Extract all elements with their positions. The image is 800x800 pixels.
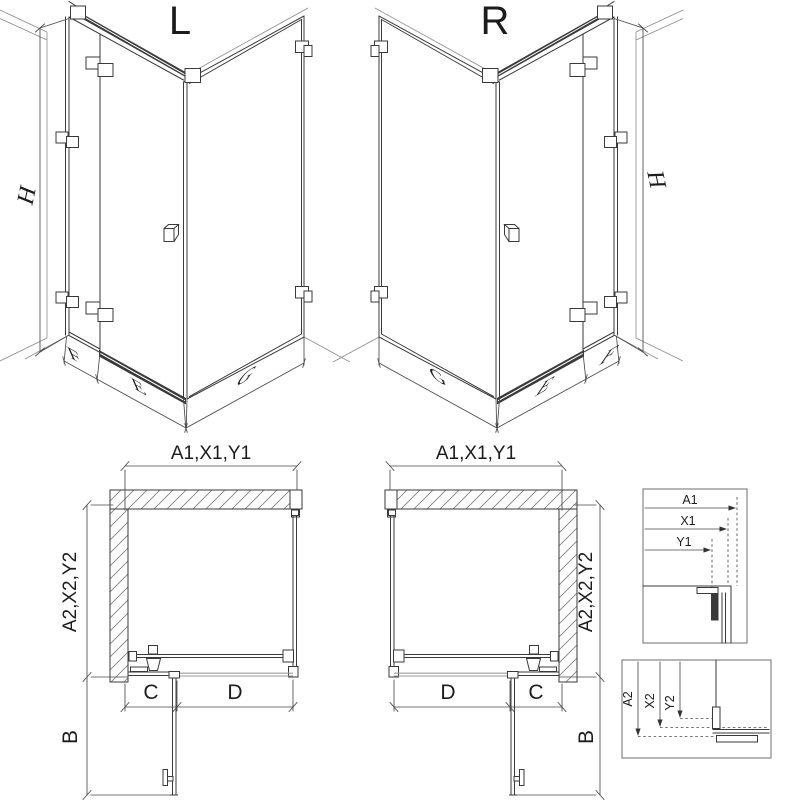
plan-support-bar-corner-block: [283, 650, 294, 662]
plan-door-handle-stem: [168, 777, 174, 782]
r-plan-top-wall-hatch: [385, 490, 577, 509]
side-glass-panel: [187, 16, 304, 399]
dim-label-side-right: G: [423, 361, 451, 392]
detail-label-y1: Y1: [676, 535, 691, 549]
corner-post: [184, 80, 188, 399]
plan-width-label-right: A1,X1,Y1: [436, 443, 516, 464]
plan-corner-fitting: [289, 667, 299, 678]
dim-label-b-left: B: [59, 730, 82, 744]
iso-dimension-lines: [40, 19, 304, 429]
technical-drawing-canvas: L R H H F F E E G G A1,X1,Y1 A1,X1,Y1 A2…: [0, 0, 800, 800]
support-bar-wall-clamp: [71, 6, 86, 19]
plan-door-handle-grip: [163, 770, 168, 786]
arrowhead-x2: [657, 720, 662, 728]
dim-label-d-right: D: [440, 681, 455, 704]
dim-label-c-left: C: [143, 681, 158, 704]
r-plan-side-wall-hatch: [559, 509, 577, 682]
plan-fixed-front-glass: [128, 672, 173, 676]
arrowhead-y1: [704, 547, 712, 552]
detail-bottom-threshold-section: [717, 736, 758, 743]
plan-fixed-glass-clamp: [131, 667, 148, 672]
l-plan-top-wall-hatch: [110, 490, 302, 509]
detail-label-x2: X2: [643, 693, 657, 708]
detail-top-wall-profile: [711, 594, 719, 621]
dim-label-height-left: H: [12, 183, 42, 208]
detail-label-y2: Y2: [663, 695, 677, 710]
plan-hinge-bracket: [147, 659, 161, 671]
detail-bottom-reference-dashes: [638, 719, 769, 737]
detail-label-a1: A1: [682, 493, 697, 507]
front-glass-wall-lines: [66, 17, 184, 353]
door-handle: [164, 225, 179, 242]
isometric-view-left-geometry: [0, 2, 350, 433]
plan-side-glass-panel: [293, 509, 297, 672]
plan-support-bar-end: [129, 652, 137, 662]
detail-top-reference-dashes: [712, 497, 737, 594]
arrowhead-a2: [635, 729, 640, 737]
l-plan-side-wall-hatch: [110, 509, 128, 682]
detail-top-bracket: [697, 588, 718, 594]
support-bar-corner-fitting: [185, 69, 201, 83]
plan-wall-profile-recess: [290, 490, 302, 509]
arrowhead-x1: [720, 526, 728, 531]
plan-tray-edge: [176, 673, 293, 676]
dim-label-d-left: D: [227, 681, 242, 704]
plan-hinge-bracket-top: [149, 646, 158, 655]
detail-box-width-references: [643, 489, 747, 643]
technical-drawing-page: L R H H F F E E G G A1,X1,Y1 A1,X1,Y1 A2…: [0, 0, 800, 800]
detail-bottom-glass-strip: [713, 730, 769, 734]
plan-width-label-left: A1,X1,Y1: [171, 443, 251, 464]
plan-wall-hatch-fills: [110, 490, 577, 682]
detail-bottom-wall-profile: [713, 707, 721, 729]
plan-door-pivot: [169, 672, 180, 679]
detail-label-x1: X1: [680, 514, 695, 528]
plan-support-bar: [136, 655, 283, 658]
isometric-view-right-geometry: [333, 2, 683, 433]
dim-label-side-left: G: [231, 361, 259, 392]
plan-depth-label-left: A2,X2,Y2: [60, 552, 81, 632]
detail-label-a2: A2: [621, 691, 635, 706]
plan-side-panel-top-fitting: [292, 510, 299, 516]
dim-label-c-right: C: [528, 681, 543, 704]
arrowhead-y2: [677, 711, 682, 719]
dim-label-b-right: B: [575, 730, 598, 744]
arrowhead-a1: [729, 505, 737, 510]
variant-right-title: R: [481, 0, 510, 43]
room-wall-lines: [0, 8, 350, 362]
dim-label-height-right: H: [641, 167, 671, 192]
variant-left-title: L: [169, 0, 191, 43]
plan-depth-label-right: A2,X2,Y2: [576, 552, 597, 632]
